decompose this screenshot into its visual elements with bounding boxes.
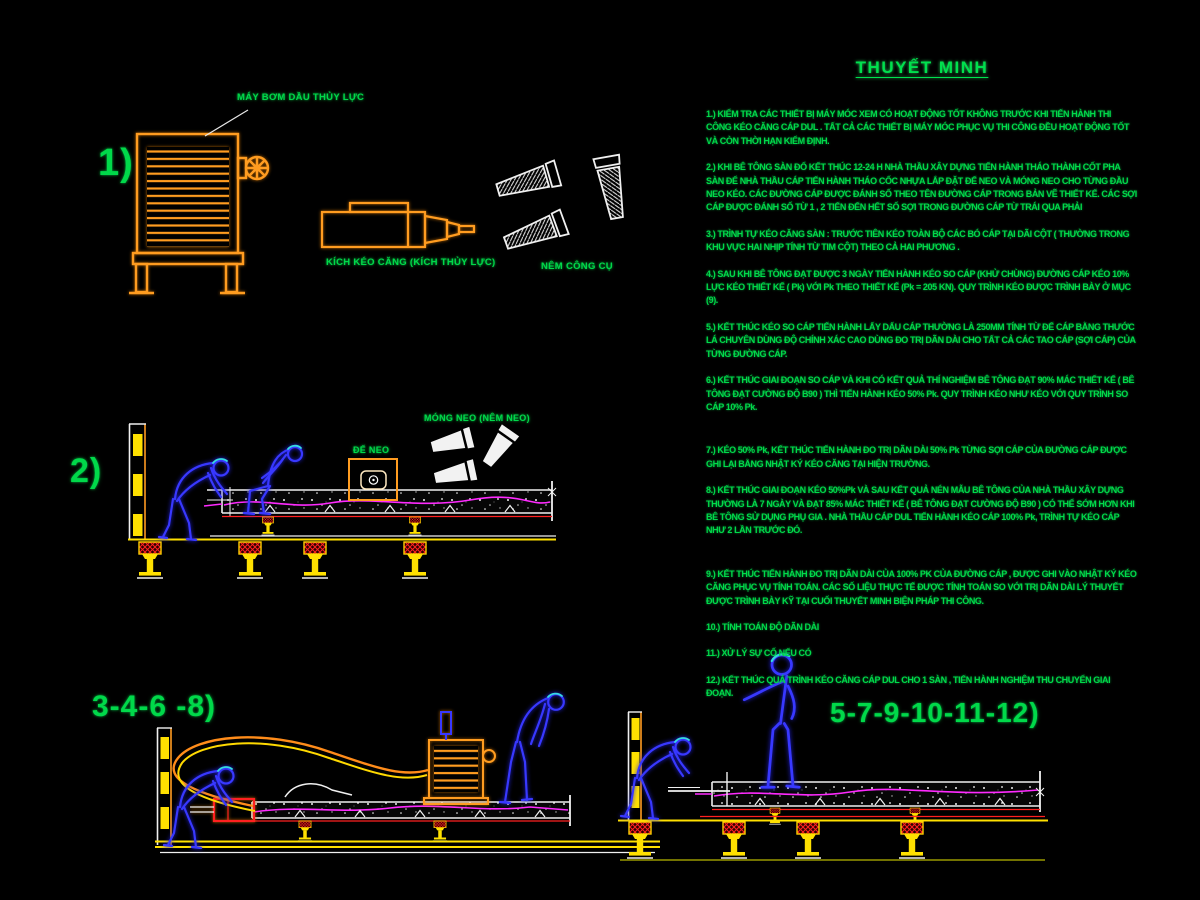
anchor-wedge-label: MÓNG NEO (NÊM NEO) [424,413,530,423]
hydraulic-pump-on-slab [424,712,495,804]
note-2: 2.) KHI BÊ TÔNG SÀN ĐỔ KẾT THÚC 12-24 H … [706,161,1138,215]
formwork-and-props [155,821,660,853]
notes-title: THUYẾT MINH [706,58,1138,78]
pump-label: MÁY BƠM DẦU THỦY LỰC [237,92,364,103]
note-11: 11.) XỬ LÝ SỰ CỐ NẾU CÓ [706,647,1138,660]
note-4: 4.) SAU KHI BÊ TÔNG ĐẠT ĐƯỢC 3 NGÀY TIẾN… [706,268,1138,308]
note-5: 5.) KẾT THÚC KÉO SO CÁP TIẾN HÀNH LẤY DẤ… [706,321,1138,361]
anchor-wedges-drawing [429,424,519,488]
slab-section [712,771,1044,812]
note-7: 7.) KÉO 50% Pk, KẾT THÚC TIẾN HÀNH ĐO TR… [706,444,1138,471]
note-12: 12.) KẾT THÚC QUÁ TRÌNH KÉO CĂNG CÁP DUL… [706,674,1138,701]
section-2-number: 2) [70,452,102,491]
section-1-number: 1) [98,142,134,185]
formwork-and-props [618,808,1048,860]
scene-equipment [90,80,680,310]
cad-drawing-canvas: 1) MÁY BƠM DẦU THỦY LỰC KÍCH KÉO CĂNG (K… [0,0,1200,900]
worker-supervising [500,694,564,803]
jack-label: KÍCH KÉO CĂNG (KÍCH THỦY LỰC) [326,257,495,268]
scene-stressing-pump [60,640,680,880]
note-1: 1.) KIỂM TRA CÁC THIẾT BỊ MÁY MÓC XEM CÓ… [706,108,1138,148]
note-3: 3.) TRÌNH TỰ KÉO CĂNG SÀN : TRƯỚC TIÊN K… [706,228,1138,255]
stressing-jack-drawing [322,203,474,247]
wall-section [129,424,146,540]
hydraulic-pump-drawing [129,134,268,293]
note-10: 10.) TÍNH TOÁN ĐỘ DÃN DÀI [706,621,1138,634]
scene-anchor-installation [60,400,680,600]
wedge-label: NÊM CÔNG CỤ [541,261,613,272]
note-9: 9.) KẾT THÚC TIẾN HÀNH ĐO TRỊ DÃN DÀI CỦ… [706,568,1138,608]
formwork-and-props [128,517,556,579]
tool-wedges-drawing [494,155,629,256]
explanation-notes: THUYẾT MINH 1.) KIỂM TRA CÁC THIẾT BỊ MÁ… [706,58,1138,714]
note-6: 6.) KẾT THÚC GIAI ĐOẠN SO CÁP VÀ KHI CÓ … [706,374,1138,414]
wall-section [157,728,172,845]
cable-guide [285,784,352,797]
worker-measuring [621,738,691,819]
note-8: 8.) KẾT THÚC GIAI ĐOẠN KÉO 50%Pk VÀ SAU … [706,484,1138,538]
section-3-number: 3-4-6 -8) [92,690,216,724]
anchor-base-label: ĐẾ NEO [353,445,389,455]
hydraulic-hoses [174,737,428,811]
pump-label-leader-line [205,110,248,136]
